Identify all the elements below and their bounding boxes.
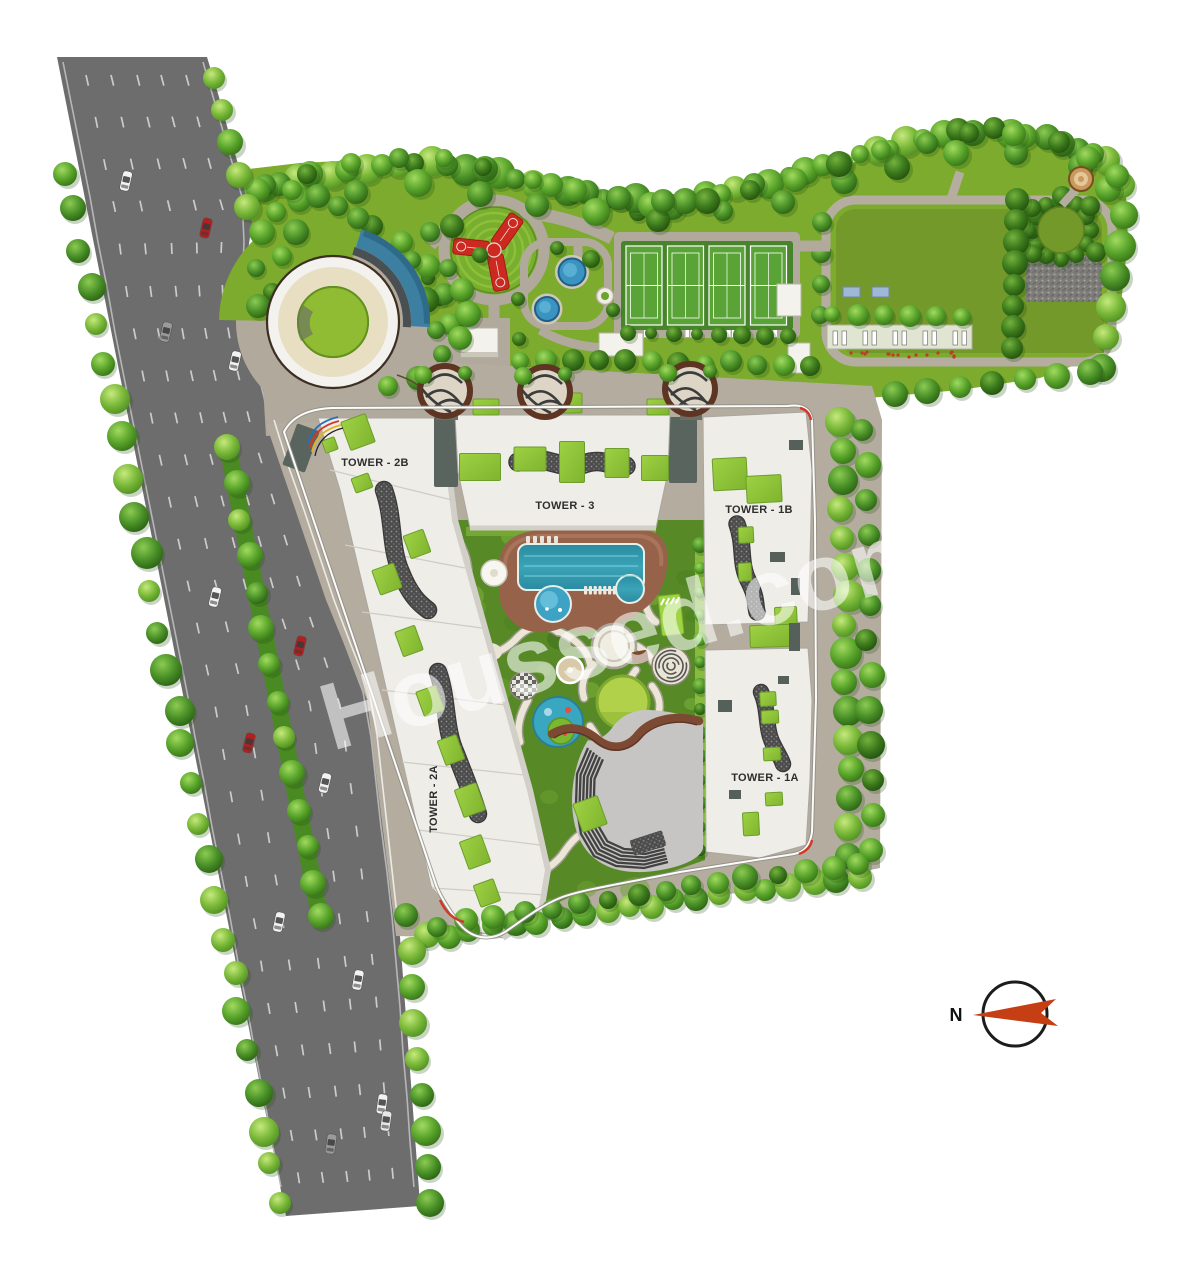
svg-text:TOWER - 2B: TOWER - 2B [341, 457, 409, 469]
svg-text:TOWER - 1B: TOWER - 1B [725, 504, 793, 516]
svg-text:N: N [950, 1005, 963, 1025]
svg-text:TOWER - 2A: TOWER - 2A [428, 765, 440, 833]
svg-text:TOWER - 3: TOWER - 3 [535, 500, 594, 512]
svg-text:TOWER - 1A: TOWER - 1A [731, 772, 799, 784]
